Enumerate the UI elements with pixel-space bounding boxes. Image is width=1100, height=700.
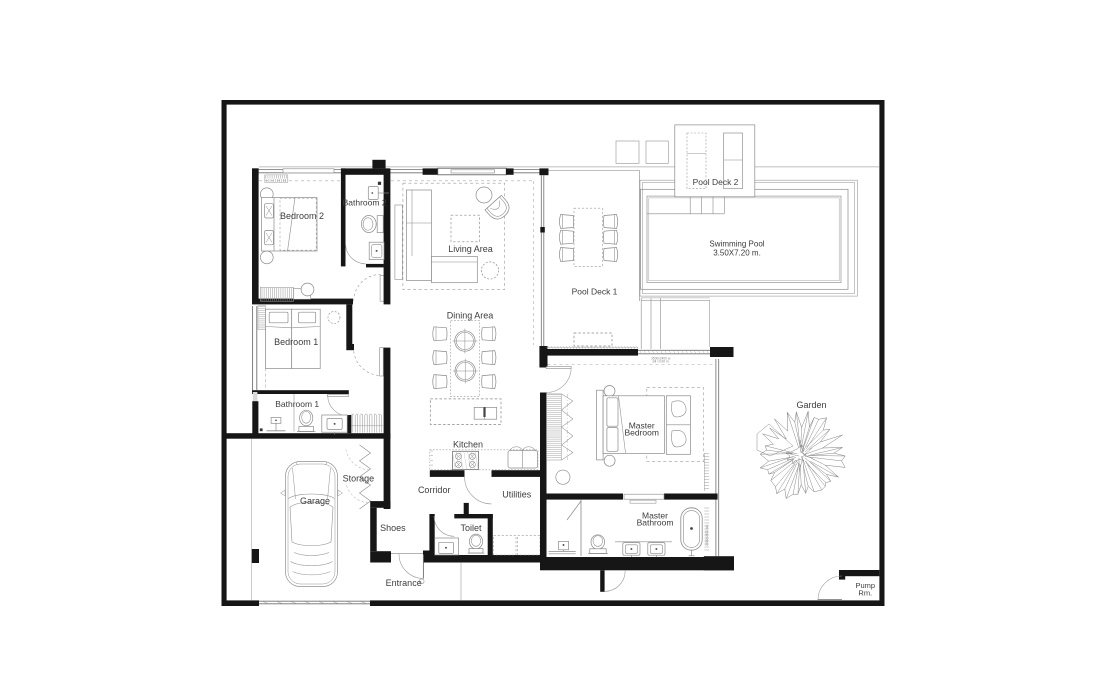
svg-text:Garage: Garage	[300, 496, 330, 506]
svg-text:Storage: Storage	[343, 473, 375, 483]
svg-text:Living Area: Living Area	[448, 244, 493, 254]
svg-text:sill +0.90 m.: sill +0.90 m.	[652, 360, 669, 364]
svg-text:Bedroom: Bedroom	[624, 428, 659, 438]
svg-text:Rm.: Rm.	[858, 588, 872, 597]
svg-text:Toilet: Toilet	[460, 523, 482, 533]
svg-text:Utilities: Utilities	[502, 490, 532, 500]
svg-text:Entrance: Entrance	[386, 578, 422, 588]
svg-text:Bathroom: Bathroom	[637, 517, 674, 527]
svg-text:Bedroom 2: Bedroom 2	[280, 211, 324, 221]
svg-text:Bedroom 1: Bedroom 1	[274, 337, 318, 347]
svg-text:Shoes: Shoes	[380, 523, 406, 533]
svg-text:Garden: Garden	[796, 400, 826, 410]
svg-text:Kitchen: Kitchen	[453, 439, 483, 449]
svg-text:Dining Area: Dining Area	[447, 311, 494, 321]
svg-text:Corridor: Corridor	[418, 485, 451, 495]
svg-text:Swimming Pool: Swimming Pool	[709, 239, 764, 248]
svg-text:Bathroom 1: Bathroom 1	[275, 399, 319, 409]
svg-text:Bathroom 2: Bathroom 2	[343, 197, 387, 207]
svg-text:2000x2100 sld.: 2000x2100 sld.	[705, 524, 709, 546]
svg-text:Pool Deck 2: Pool Deck 2	[693, 177, 739, 187]
svg-text:Pool Deck 1: Pool Deck 1	[572, 287, 618, 297]
svg-text:3.50X7.20 m.: 3.50X7.20 m.	[713, 249, 761, 258]
